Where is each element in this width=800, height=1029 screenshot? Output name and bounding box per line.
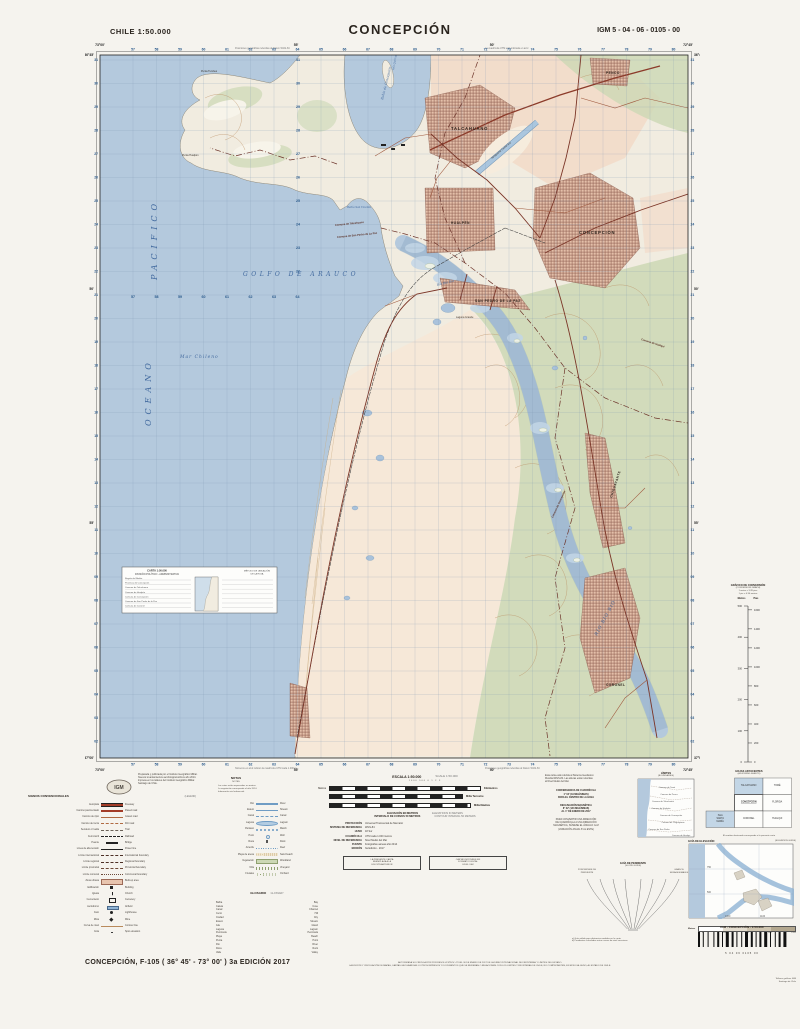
place-label: Punta Tumbes <box>201 70 218 73</box>
legend-label-en: Gravel road <box>123 815 196 818</box>
grid-northing-label: 18 <box>691 364 695 368</box>
grid-easting-label: 75 <box>554 48 558 52</box>
place-label: SAN PEDRO DE LA PAZ <box>475 299 521 303</box>
legend-label-en: Lagoon <box>278 821 332 824</box>
edition-line: CONCEPCIÓN, F-105 ( 36° 45' - 73° 00' ) … <box>85 959 290 966</box>
trail-symbol <box>101 828 123 832</box>
pies-tick: 1200 <box>754 646 760 650</box>
latitude-label: 37°00' <box>85 756 94 760</box>
grid-easting-label: 66 <box>343 763 347 767</box>
barcode-bar <box>726 932 729 947</box>
legend-label-en: Lighthouse <box>123 911 196 914</box>
legend-label-en: Communal boundary <box>123 873 196 876</box>
grid-northing-label: 27 <box>94 152 98 156</box>
grid-northing-inmap: 26 <box>296 176 300 180</box>
legend-label-es: Frutales <box>202 872 256 875</box>
grid-easting-label: 65 <box>319 48 323 52</box>
grid-northing-label: 22 <box>691 270 695 274</box>
grid-easting-label: 70 <box>437 763 441 767</box>
grid-northing-label: 30 <box>94 82 98 86</box>
barcode-bar <box>741 932 742 947</box>
scale-bar-mile: Milla Terrestre <box>300 794 550 799</box>
grid-easting-inmap: 63 <box>272 295 276 299</box>
barcode-bar <box>736 932 737 947</box>
adjacent-sheet-name: HUALQUI <box>772 817 783 820</box>
grid-easting-label: 77 <box>601 763 605 767</box>
grid-easting-inmap: 62 <box>249 295 253 299</box>
grid-northing-inmap: 27 <box>296 152 300 156</box>
grid-northing-label: 20 <box>94 317 98 321</box>
adjacent-sheet-name: TALCAHUANO <box>741 784 757 787</box>
commune-name: Comuna de Penco <box>660 794 678 796</box>
longitude-label: 73°00' <box>95 43 105 47</box>
metadata-row: EDICIÓN3a Edición - 2017 <box>300 847 550 851</box>
margin-note-top-left: Posiciones geográficas referidas al Datu… <box>235 47 290 50</box>
grid-northing-inmap: 28 <box>296 129 300 133</box>
legend-label-en: Woodland <box>278 859 332 862</box>
legend-label-en: Cemetery <box>123 898 196 901</box>
grid-northing-label: 19 <box>691 340 695 344</box>
grid-easting-label: 64 <box>296 48 300 52</box>
grid-northing-label: 25 <box>691 199 695 203</box>
grid-easting-label: 71 <box>460 763 464 767</box>
grid-northing-label: 14 <box>691 458 695 462</box>
grid-northing-label: 13 <box>691 481 695 485</box>
grid-easting-label: 74 <box>531 48 535 52</box>
text-line: EDICIÓN ANTERIOR <box>347 864 417 867</box>
grid-northing-label: 11 <box>94 528 98 532</box>
scale-numbers: 1000 500 0 1 2 3 <box>300 780 550 783</box>
slope-curve <box>639 879 679 929</box>
legend-label-en: Freeway <box>123 803 196 806</box>
inset-row-label: Comuna de Talcahuano <box>125 587 149 589</box>
air-symbol <box>101 904 123 908</box>
igm-logo: IGM <box>106 778 132 796</box>
legend-label-es: Roca <box>202 840 256 843</box>
grid-easting-label: 60 <box>202 48 206 52</box>
text-line: Santiago de Chile. <box>138 782 230 785</box>
legend-label-en: Canal <box>278 814 332 817</box>
legend-label-en: Marsh <box>278 827 332 830</box>
barcode-bar <box>717 932 719 947</box>
legend-label-en: Paved road <box>123 809 196 812</box>
legend-label-es: Laguna <box>202 821 256 824</box>
note-box-2: CARTA DISPONIBLE ENFORMATO DIGITALEN EL … <box>429 856 507 870</box>
legend-label-es: Pozo <box>202 834 256 837</box>
legend-label-es: Puente <box>28 841 101 844</box>
grid-northing-label: 12 <box>94 505 98 509</box>
longitude-label: 72°45' <box>683 43 693 47</box>
legend-label-es: Camino pavimentado <box>28 809 101 812</box>
mina-symbol <box>101 917 123 921</box>
grid-northing-label: 15 <box>94 434 98 438</box>
legend-label-es: Camino de ripio <box>28 815 101 818</box>
road1-symbol <box>101 802 123 806</box>
grid-easting-label: 72 <box>484 763 488 767</box>
grid-northing-label: 04 <box>691 693 695 697</box>
metros-tick: 200 <box>738 697 743 701</box>
glossary-row: ValleValley <box>216 951 318 955</box>
adjacent-sheet-name: MARÍA <box>717 820 725 823</box>
grid-northing-label: 07 <box>94 622 98 626</box>
grid-northing-label: 15 <box>691 434 695 438</box>
grid-northing-label: 20 <box>691 317 695 321</box>
legend-label-es: Curva de nivel <box>28 924 101 927</box>
inset-row-label: Comuna de Hualpén <box>125 592 146 594</box>
grid-northing-label: 02 <box>94 740 98 744</box>
inset-subtitle: DIVISIÓN POLÍTICO - ADMINISTRATIVA <box>135 573 179 576</box>
metros-tick: 0 <box>741 760 743 764</box>
text-line: EN EL IGM <box>433 864 503 867</box>
inset-row-label: Comuna de Concepción <box>125 596 149 598</box>
place-label: Laguna Grande <box>456 316 474 319</box>
grid-northing-label: 21 <box>94 293 98 297</box>
scale-bar-km: MetrosKilómetros <box>300 786 550 791</box>
legend-label-en: Provincial boundary <box>123 866 196 869</box>
legend-label-en: Building <box>123 886 196 889</box>
grid-northing-label: 16 <box>691 411 695 415</box>
legend-label-es: Cota <box>28 930 101 933</box>
text-line: PARA EL CENTRO DE LA HOJA <box>545 796 607 799</box>
legend-label-es: Arrecife <box>202 846 256 849</box>
barcode-bar <box>756 932 757 947</box>
grid-northing-label: 26 <box>94 176 98 180</box>
grid-northing-label: 16 <box>94 411 98 415</box>
grid-convergence-note: CONVERGENCIA DE CUADRÍCULA1° 04' (19 MIL… <box>545 789 607 798</box>
longitude-label: 50' <box>490 768 495 772</box>
latitude-label: 55' <box>89 521 94 525</box>
grid-northing-label: 24 <box>691 223 695 227</box>
place-label: PACIFICO <box>150 199 159 281</box>
inset-row-label: Provincia de Concepción <box>125 582 150 585</box>
latitude-label: 36°45' <box>694 53 700 57</box>
barcode-bar <box>764 932 767 947</box>
legend-label-es: Vegetación <box>202 859 256 862</box>
grid-northing-label: 19 <box>94 340 98 344</box>
grid-northing-label: 17 <box>691 387 695 391</box>
arena-symbol <box>256 852 278 856</box>
legend-label-en: Sand beach <box>278 853 332 856</box>
notas-lines: Las cotas están expresadas en metros.La … <box>218 785 258 793</box>
legend-label-es: Iglesia <box>28 892 101 895</box>
magnetic-declination-note: DECLINACIÓN MAGNÉTICA8° 02' (143 MILÉSIM… <box>545 804 607 813</box>
elevation-guide-panel: GUÍA DE ELEVACIÓN (ELEVATION GUIDE) 7505… <box>688 840 796 935</box>
legend-label-es: Pantano <box>202 827 256 830</box>
grid-northing-label: 29 <box>691 105 695 109</box>
barcode-bar <box>698 932 700 947</box>
place-label: CONCEPCIÓN <box>579 230 615 235</box>
conversion-note: PARA CONVERTIR UNA DIRECCIÓNDE CUADRÍCUL… <box>545 818 607 831</box>
road3-symbol <box>101 815 123 819</box>
grid-easting-label: 69 <box>413 763 417 767</box>
grid-northing-inmap: 24 <box>296 223 300 227</box>
grid-easting-label: 70 <box>437 48 441 52</box>
road2-symbol <box>101 808 123 812</box>
barcode-bar <box>770 932 771 947</box>
barcode-bar <box>779 932 781 947</box>
barcode-bar <box>703 932 704 947</box>
reference-note: Esta carta está referida al Sistema Geod… <box>545 774 607 783</box>
grid-northing-label: 22 <box>94 270 98 274</box>
legend-label-es: Cementerio <box>28 898 101 901</box>
place-label: GOLFO DE ARAUCO <box>243 271 359 278</box>
grid-northing-inmap: 25 <box>296 199 300 203</box>
grid-northing-label: 13 <box>94 481 98 485</box>
legend-label-en: Orchard <box>278 872 332 875</box>
inset-right-title2: DE LA HOJA <box>251 573 264 576</box>
legend-label-es: Límite regional <box>28 860 101 863</box>
grid-northing-label: 31 <box>94 58 98 62</box>
grid-easting-label: 75 <box>554 763 558 767</box>
latitude-label: 55' <box>694 521 699 525</box>
legend-label-en: Rock <box>278 840 332 843</box>
place-label: TALCAHUANO <box>451 126 488 131</box>
grid-northing-label: 24 <box>94 223 98 227</box>
grid-northing-label: 27 <box>691 152 695 156</box>
pies-tick: 800 <box>754 684 759 688</box>
barcode-bar <box>708 932 709 947</box>
grid-easting-label: 66 <box>343 48 347 52</box>
adjacent-sheet-name: SANTA <box>716 817 724 820</box>
pies-tick: 200 <box>754 741 759 745</box>
bridge-symbol <box>101 840 123 844</box>
legend-label-en: Stream <box>278 808 332 811</box>
adjoining-sheets-caption: El nombre destacado corresponde a la pre… <box>703 835 795 838</box>
legend-label-en: Well <box>278 834 332 837</box>
grid-northing-label: 23 <box>94 246 98 250</box>
cont-symbol <box>101 924 123 928</box>
grid-easting-label: 72 <box>484 48 488 52</box>
legend-label-es: Zona urbana <box>28 879 101 882</box>
scale-title: ESCALA 1:50.000 <box>392 775 421 780</box>
grid-northing-label: 30 <box>691 82 695 86</box>
text-line: AL 1° DE ENERO DE 2017 <box>545 810 607 813</box>
grid-easting-inmap: 64 <box>296 295 300 299</box>
place-label: HUALPÉN <box>451 220 470 225</box>
roca-symbol <box>256 840 278 844</box>
grid-northing-label: 07 <box>691 622 695 626</box>
place-label: Punta Hualpén <box>182 154 199 157</box>
text-line: al Nivel Medio del Mar. <box>545 780 607 783</box>
grid-easting-label: 79 <box>648 763 652 767</box>
legend-label-en: International boundary <box>123 854 196 857</box>
b1-symbol <box>101 853 123 857</box>
vina-symbol <box>256 865 278 869</box>
grid-easting-label: 63 <box>272 763 276 767</box>
grid-easting-label: 58 <box>155 48 159 52</box>
metros-tick: 300 <box>738 666 743 670</box>
grid-northing-inmap: 23 <box>296 246 300 250</box>
grid-easting-inmap: 61 <box>225 295 229 299</box>
rail-symbol <box>101 834 123 838</box>
barcode-bar <box>732 932 734 947</box>
grid-easting-label: 73 <box>507 48 511 52</box>
grid-easting-label: 77 <box>601 48 605 52</box>
conversion-note-2: 1 pie = 0.30 metros <box>700 593 796 596</box>
faro-symbol <box>101 911 123 915</box>
grid-northing-label: 10 <box>691 552 695 556</box>
legend-label-es: Playa de arena <box>202 853 256 856</box>
legend-label-en: Airfield <box>123 905 196 908</box>
latitude-label: 50' <box>89 287 94 291</box>
barcode-bar <box>713 932 714 947</box>
legend-label-en: Dirt road <box>123 822 196 825</box>
grid-easting-label: 63 <box>272 48 276 52</box>
igm-logo-text: IGM <box>114 785 123 791</box>
grid-easting-label: 59 <box>178 48 182 52</box>
inset-row-label: Comuna de Coronel <box>125 605 145 608</box>
grid-easting-label: 80 <box>672 48 676 52</box>
barcode-bar <box>722 932 723 947</box>
grid-northing-label: 06 <box>94 646 98 650</box>
pies-tick: 1400 <box>754 627 760 631</box>
legend-label-en: Regional boundary <box>123 860 196 863</box>
grid-easting-inmap: 59 <box>178 295 182 299</box>
inset-title: CARTA 1:50.000 <box>147 569 167 573</box>
grid-northing-inmap: 31 <box>296 58 300 62</box>
text-line: Santiago de Chile <box>726 981 796 984</box>
est-symbol <box>256 808 278 812</box>
grid-easting-label: 67 <box>366 48 370 52</box>
grid-northing-label: 09 <box>94 575 98 579</box>
legend-label-es: Canal <box>202 814 256 817</box>
grid-northing-inmap: 30 <box>296 82 300 86</box>
pies-tick: 400 <box>754 722 759 726</box>
glossary-es: Valle <box>216 951 221 955</box>
grid-easting-label: 79 <box>648 48 652 52</box>
elevation-guide-map: 750500 10001100 <box>688 843 794 919</box>
legend-row: FrutalesOrchard <box>202 870 332 876</box>
glossary-title-en: GLOSSARY <box>271 892 284 895</box>
pies-tick: 0 <box>754 760 756 764</box>
metros-tick: 400 <box>738 635 743 639</box>
fields-east <box>640 188 688 253</box>
grid-northing-label: 28 <box>94 129 98 133</box>
lag-symbol <box>256 820 278 824</box>
grid-easting-label: 67 <box>366 763 370 767</box>
metros-tick: 500 <box>738 604 743 608</box>
grid-easting-label: 78 <box>625 763 629 767</box>
sheet-code: IGM 5 - 04 - 06 - 0105 - 00 <box>597 27 680 34</box>
fru-symbol <box>256 871 278 875</box>
glossary-en: Valley <box>312 951 318 955</box>
text-line: Información vial referencial. <box>218 791 258 794</box>
grid-northing-label: 05 <box>94 669 98 673</box>
legend-label-en: Contour line <box>123 924 196 927</box>
legend-label-es: Faro <box>28 911 101 914</box>
can-symbol <box>256 814 278 818</box>
legend-label-es: Camino de tierra <box>28 822 101 825</box>
legend-label-es: Ferrocarril <box>28 835 101 838</box>
legend-label-es: Línea de alta tensión <box>28 847 101 850</box>
road4-symbol <box>101 821 123 825</box>
grid-easting-label: 74 <box>531 763 535 767</box>
commune-name: Comuna de Chiguayante <box>662 821 686 824</box>
riv-symbol <box>256 801 278 805</box>
geodetic-notes: Esta carta está referida al Sistema Geod… <box>545 774 607 831</box>
legend-title: SIGNOS CONVENCIONALES <box>28 795 69 799</box>
legend-label-en: Vineyard <box>278 866 332 869</box>
topographic-map: Posiciones geográficas referidas al Datu… <box>85 38 700 772</box>
grid-northing-label: 14 <box>94 458 98 462</box>
grid-northing-label: 28 <box>691 129 695 133</box>
circulation-note: AUTORIZADA SU CIRCULACIÓN POR RESOLUCIÓN… <box>300 962 660 968</box>
grid-northing-label: 18 <box>94 364 98 368</box>
place-label: Mar Chileno <box>179 355 219 360</box>
barcode-block: IGM - CONCEPCIÓN - 1:50.000 5 04 06 0105… <box>688 926 796 955</box>
map-metadata: PROYECCIÓNUniversal Transversal de Merca… <box>300 822 550 852</box>
legend-label-en: Reef <box>278 846 332 849</box>
grid-northing-label: 23 <box>691 246 695 250</box>
commune-name: Comuna de Hualqui <box>672 835 691 837</box>
scale-title-en: SCALE 1:50.000 <box>435 775 457 780</box>
grid-northing-label: 17 <box>94 387 98 391</box>
adjoining-sheets-grid: TALCAHUANOTOMÉCONCEPCIÓNFLORIDAISLASANTA… <box>703 776 795 830</box>
grid-northing-label: 29 <box>94 105 98 109</box>
grid-easting-label: 62 <box>249 763 253 767</box>
urb-symbol <box>101 879 123 883</box>
grid-easting-label: 68 <box>390 48 394 52</box>
boundaries-panel: LÍMITES (BOUNDARIES) Comuna de ToméComun… <box>637 772 695 843</box>
inset-row-label: Comuna de San Pedro de la Paz <box>125 600 157 603</box>
glossary-title: GLOSARIO <box>250 891 266 895</box>
latitude-label: 36°45' <box>85 53 94 57</box>
cem-symbol <box>101 898 123 902</box>
pies-tick: 600 <box>754 703 759 707</box>
legend-label-es: Mina <box>28 918 101 921</box>
svg-text:1000: 1000 <box>725 915 731 918</box>
b2-symbol <box>101 860 123 864</box>
note-box-1: LA PRESENTE CARTAREEMPLAZA A LAEDICIÓN A… <box>343 856 421 870</box>
grid-northing-label: 12 <box>691 505 695 509</box>
grid-northing-label: 31 <box>691 58 695 62</box>
place-label: Bahía San Vicente <box>346 205 371 209</box>
pies-tick: 1600 <box>754 608 760 612</box>
grid-easting-label: 61 <box>225 763 229 767</box>
notas-title-en: NOTES <box>222 781 250 784</box>
adjacent-sheet-name: TOMÉ <box>774 784 781 787</box>
scale-block: ESCALA 1:50.000 SCALE 1:50.000 1000 500 … <box>300 775 550 870</box>
longitude-label: 55' <box>294 43 299 47</box>
slope-guide-fan <box>572 875 694 933</box>
b3-symbol <box>101 866 123 870</box>
grid-easting-label: 65 <box>319 763 323 767</box>
grid-easting-label: 57 <box>131 763 135 767</box>
commune-name: Comuna de San Pedro <box>648 828 670 831</box>
notas-block: NOTAS NOTES <box>222 777 250 784</box>
svg-text:750: 750 <box>707 866 712 869</box>
veg-symbol <box>256 859 278 863</box>
conversion-ruler: 0100200300400500020040060080010001200140… <box>700 600 796 768</box>
barcode-bar <box>759 932 761 947</box>
boundaries-map: Comuna de ToméComuna de PencoComuna de T… <box>637 778 695 838</box>
commune-name: Comuna de Concepción <box>660 815 683 817</box>
legend-label-en: Built-up area <box>123 879 196 882</box>
grid-easting-label: 60 <box>202 763 206 767</box>
commune-name: Comuna de Hualpén <box>651 808 671 810</box>
inset-row-label: Región del Biobío <box>125 578 143 580</box>
barcode <box>696 932 788 947</box>
grid-northing-inmap: 29 <box>296 105 300 109</box>
scale-bar-nmile: Milla Náutica <box>300 803 550 808</box>
grid-easting-label: 76 <box>578 763 582 767</box>
map-sheet: CHILE 1:50.000 CONCEPCIÓN IGM 5 - 04 - 0… <box>0 0 800 1029</box>
legend-label-en: Railroad <box>123 835 196 838</box>
barcode-bar <box>783 932 786 947</box>
legend-column-1: SIGNOS CONVENCIONALES (LEGEND) Autopista… <box>28 795 196 935</box>
grid-northing-label: 21 <box>691 293 695 297</box>
pozo-symbol <box>256 833 278 837</box>
